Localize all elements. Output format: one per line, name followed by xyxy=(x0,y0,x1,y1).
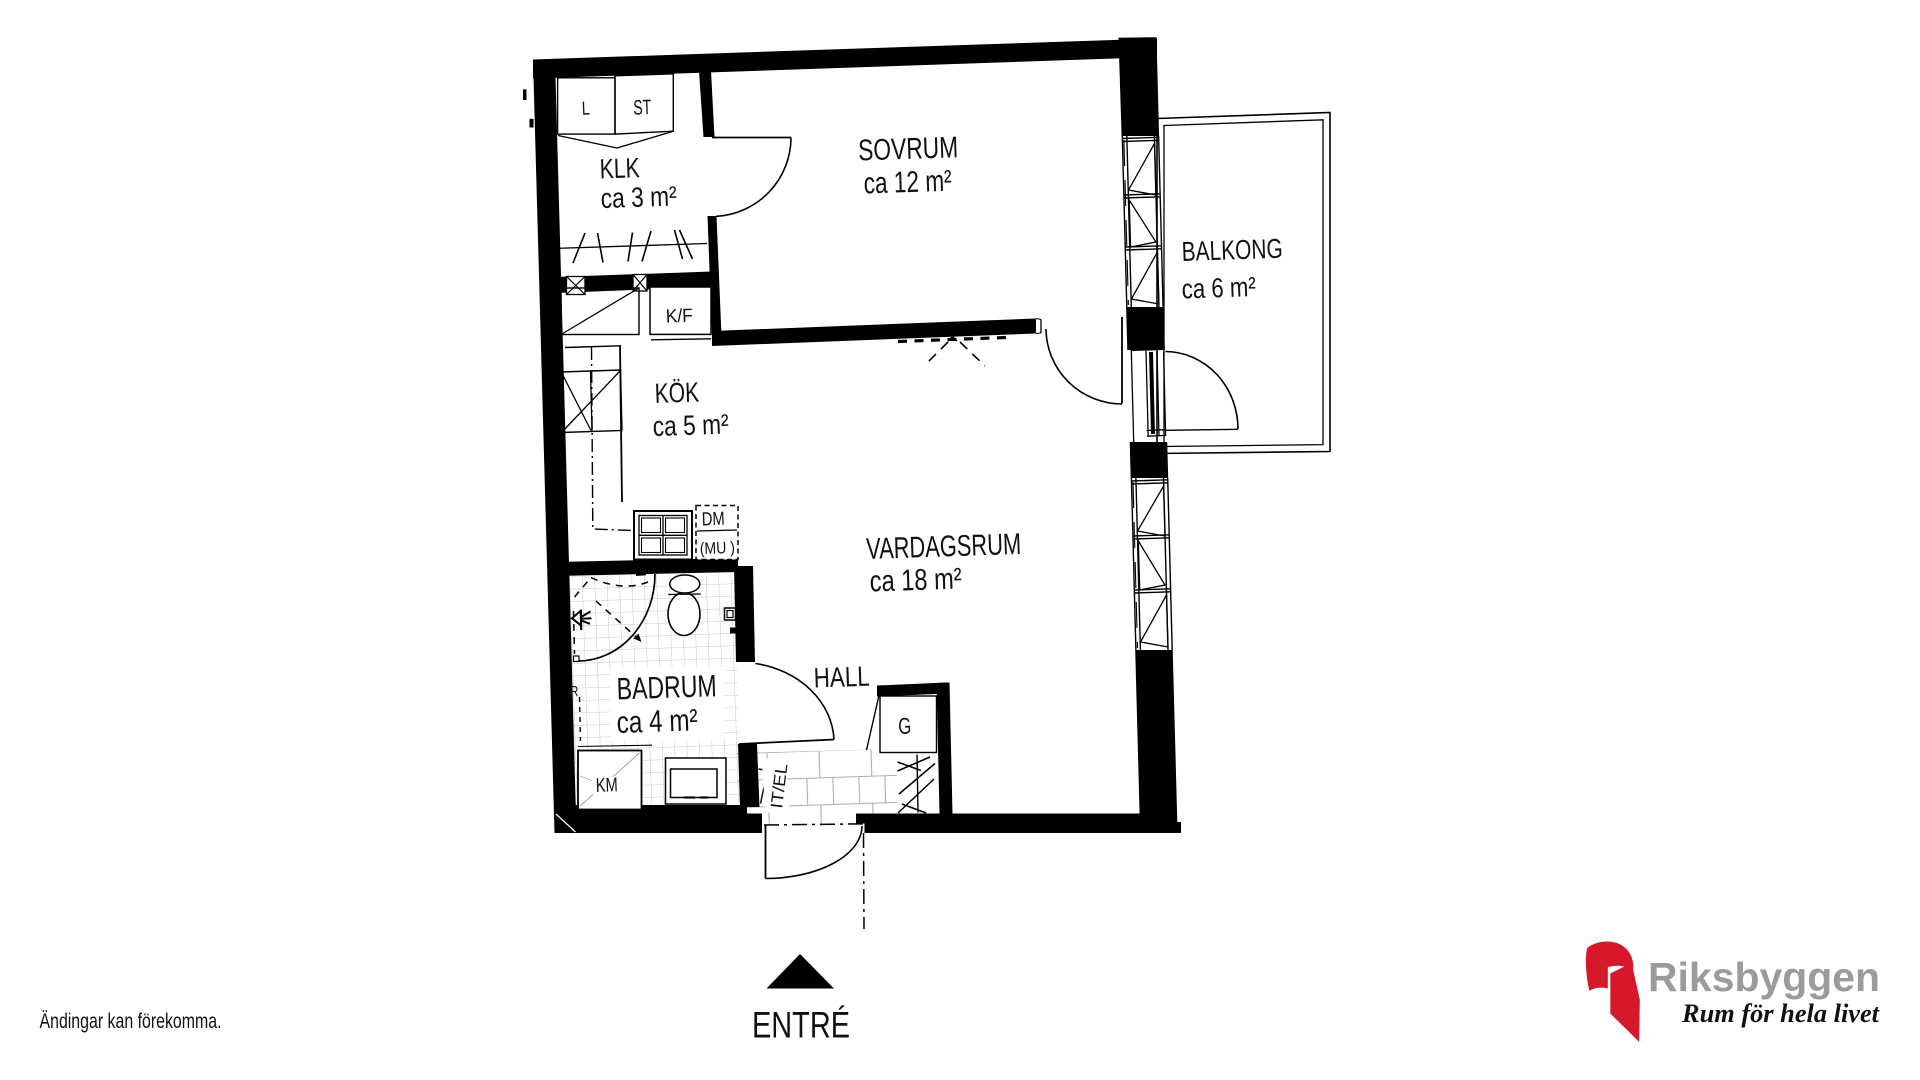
svg-text:Rum för hela livet: Rum för hela livet xyxy=(1681,998,1881,1028)
svg-text:KÖK: KÖK xyxy=(654,377,700,409)
svg-text:SOVRUM: SOVRUM xyxy=(858,131,959,167)
svg-text:ENTRÉ: ENTRÉ xyxy=(752,1005,850,1046)
svg-text:R: R xyxy=(570,683,579,700)
svg-text:ST: ST xyxy=(633,96,652,120)
svg-text:L: L xyxy=(581,98,590,119)
svg-text:ca 12 m²: ca 12 m² xyxy=(863,165,952,201)
svg-text:ca 18 m²: ca 18 m² xyxy=(869,562,962,598)
svg-text:ca 3 m²: ca 3 m² xyxy=(600,180,677,214)
svg-text:ca 6 m²: ca 6 m² xyxy=(1181,271,1256,304)
svg-text:ca 5 m²: ca 5 m² xyxy=(652,408,729,442)
svg-text:KLK: KLK xyxy=(599,152,640,184)
svg-text:BADRUM: BADRUM xyxy=(616,668,717,706)
svg-text:(MU ): (MU ) xyxy=(700,539,736,558)
svg-text:HALL: HALL xyxy=(813,661,870,694)
svg-text:VARDAGSRUM: VARDAGSRUM xyxy=(866,528,1022,566)
svg-text:Riksbyggen: Riksbyggen xyxy=(1648,954,1880,1000)
svg-text:KM: KM xyxy=(595,774,618,797)
svg-text:DM: DM xyxy=(701,509,725,531)
svg-text:ca 4 m²: ca 4 m² xyxy=(616,702,698,740)
svg-text:BALKONG: BALKONG xyxy=(1181,233,1283,267)
svg-text:Ändingar kan förekomma.: Ändingar kan förekomma. xyxy=(40,1010,222,1033)
svg-text:G: G xyxy=(898,713,912,739)
svg-text:K/F: K/F xyxy=(665,306,693,328)
